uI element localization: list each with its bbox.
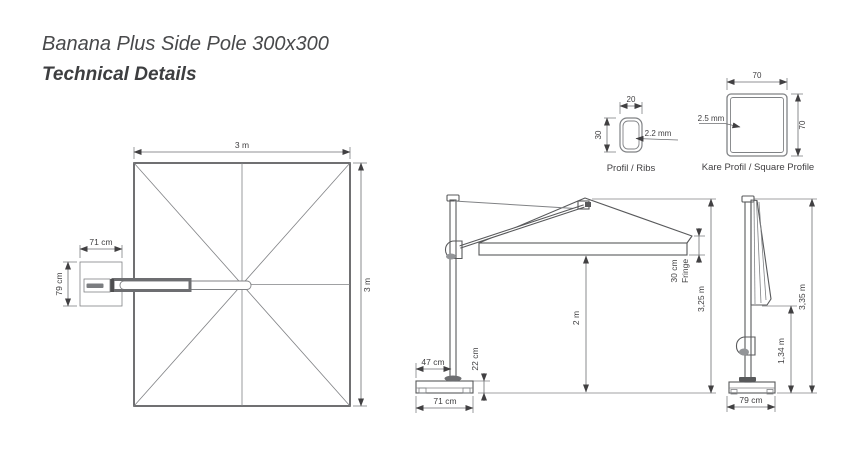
dim-label-total-height-open: 3,25 m <box>696 286 706 312</box>
dim-label-canopy-height: 3 m <box>362 278 372 292</box>
page-subtitle: Technical Details <box>42 64 197 85</box>
dim-label-base-width-side: 71 cm <box>433 396 456 406</box>
dim-label-rib-width: 20 <box>627 95 636 104</box>
dim-label-canopy-width: 3 m <box>235 140 249 150</box>
dim-label-base-height: 22 cm <box>470 347 480 370</box>
support-rod <box>454 201 583 209</box>
technical-drawing-page: Banana Plus Side Pole 300x300 Technical … <box>0 0 847 460</box>
dim-label-fringe-value: 30 cm <box>669 259 679 282</box>
dim-label-pole-offset: 47 cm <box>421 357 444 367</box>
dim-base-width-top: 71 cm <box>80 237 122 258</box>
dim-label-total-height-closed: 3,35 m <box>797 284 807 310</box>
dim-folded-canopy-height: 1,34 m <box>776 306 791 393</box>
base-closed <box>729 382 775 394</box>
side-view: 47 cm 22 cm 71 cm 2 m 30 cm <box>416 195 716 413</box>
pole-bracket-shade <box>446 254 456 260</box>
cantilever-arm-highlight <box>460 206 584 247</box>
rib-profile-caption: Profil / Ribs <box>607 163 656 174</box>
dim-label-square-width: 70 <box>753 71 762 80</box>
dim-label-fringe-word: Fringe <box>680 259 690 283</box>
square-thickness-label: 2.5 mm <box>698 114 725 123</box>
technical-drawing-canvas: Banana Plus Side Pole 300x300 Technical … <box>0 0 847 460</box>
canopy-hub-detail <box>585 202 591 207</box>
dim-square-height: 70 <box>791 94 807 156</box>
dim-label-folded-canopy-height: 1,34 m <box>776 338 786 364</box>
dim-pole-offset: 47 cm <box>416 357 451 378</box>
dim-rib-height: 30 <box>594 118 616 152</box>
page-title: Banana Plus Side Pole 300x300 <box>42 33 329 55</box>
square-profile: 70 70 2.5 mm Kare Profil / Square Profil… <box>698 71 815 173</box>
dim-label-rib-height: 30 <box>594 130 603 139</box>
pole-base-flange <box>739 377 756 382</box>
pole-top-cap <box>742 196 754 202</box>
closed-view: 1,34 m 3,35 m 79 cm <box>727 196 817 412</box>
top-view: 3 m 3 m 71 cm 79 cm <box>54 140 372 406</box>
base-outline <box>729 382 775 393</box>
square-profile-outer <box>727 94 787 156</box>
dim-base-width-closed: 79 cm <box>727 395 775 412</box>
canopy-fold-line <box>754 201 755 304</box>
pole-brand-label <box>87 284 104 289</box>
dim-canopy-width: 3 m <box>134 140 350 159</box>
pole-side <box>450 200 456 381</box>
dim-total-height-closed: 3,35 m <box>797 199 812 393</box>
canopy-fringe-band <box>479 243 687 255</box>
base-foot <box>463 388 470 393</box>
dim-label-clearance: 2 m <box>571 311 581 325</box>
rib-thickness-label: 2.2 mm <box>645 129 672 138</box>
base-foot <box>419 388 426 393</box>
dim-label-square-height: 70 <box>798 120 807 129</box>
dim-base-depth-top: 79 cm <box>54 262 77 306</box>
dim-rib-width: 20 <box>620 95 642 114</box>
dim-label-base-depth-top: 79 cm <box>54 272 64 295</box>
dim-label-base-width-top: 71 cm <box>89 237 112 247</box>
arm-rod <box>120 281 251 290</box>
dim-total-height-open: 3,25 m <box>696 199 711 393</box>
dim-clearance: 2 m <box>571 256 586 392</box>
dim-square-width: 70 <box>727 71 787 90</box>
pole-base-joint <box>445 376 462 382</box>
dim-base-width-side: 71 cm <box>416 396 473 413</box>
rib-profile: 20 30 2.2 mm Profil / Ribs <box>594 95 678 174</box>
square-profile-caption: Kare Profil / Square Profile <box>702 162 814 173</box>
base-outline <box>416 381 473 393</box>
dim-label-base-width-closed: 79 cm <box>739 395 762 405</box>
base-side <box>416 381 473 393</box>
pole-bracket-shade <box>739 349 749 356</box>
dim-canopy-height: 3 m <box>353 163 372 406</box>
